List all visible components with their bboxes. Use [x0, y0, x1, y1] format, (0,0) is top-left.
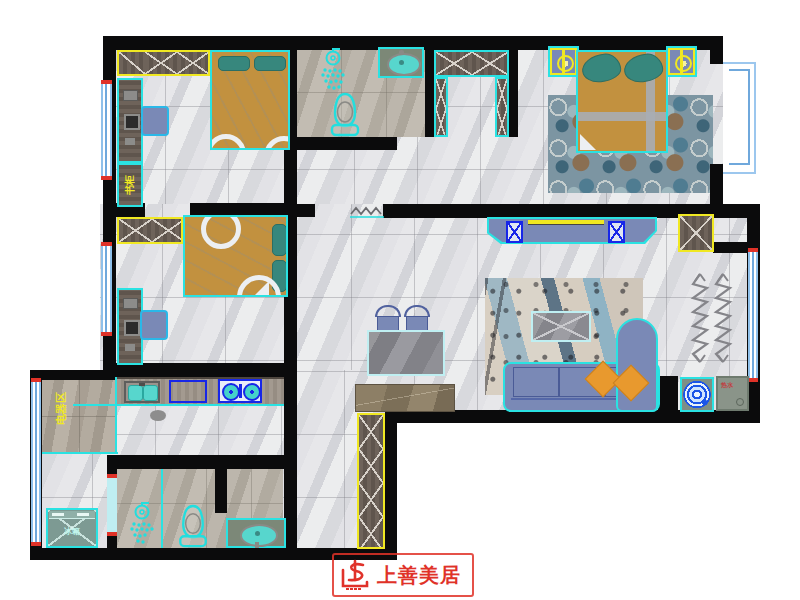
wall-bathroom2-top [107, 455, 297, 469]
utility-window [31, 382, 41, 542]
bed-blanket-swirl [210, 134, 246, 150]
wall-closet-left [425, 50, 434, 137]
bed-pillow [254, 56, 286, 71]
fridge-handle [77, 513, 89, 516]
desk-pc-icon [124, 320, 140, 336]
floor-plan: 书柜 [0, 0, 800, 600]
bed-fold-corner [253, 281, 269, 297]
bedroom2-chair [140, 310, 168, 340]
stove-burner [243, 383, 261, 401]
wall-entry-column [385, 410, 397, 560]
wall-left-step [30, 370, 117, 380]
bedroom1-window [101, 84, 112, 176]
bed-pillow [272, 224, 287, 256]
door-tick [107, 474, 117, 478]
master-bay-window [723, 62, 756, 174]
sink-bowl [128, 385, 143, 401]
window-tick [31, 542, 41, 546]
bathroom2-door [107, 478, 117, 532]
fridge-top-panel [49, 511, 95, 519]
bed-pillow [218, 56, 250, 71]
sink-faucet [399, 50, 404, 55]
sink-bowl [143, 385, 158, 401]
closet-right-column [495, 77, 509, 137]
threshold-zigzag-icon [350, 205, 384, 219]
water-heater-cabinet: 热水 [716, 376, 749, 411]
desk-printer-icon [123, 298, 138, 309]
dining-sideboard [355, 384, 455, 412]
logo-mark-icon [339, 558, 371, 592]
bed-blanket-swirl [201, 215, 241, 249]
desk-printer-icon [123, 90, 138, 101]
master-pillow [623, 52, 665, 84]
nightstand-cross [680, 50, 683, 73]
shower-icon [122, 502, 162, 548]
closet-top-wardrobe [434, 50, 509, 77]
sink-basin [387, 53, 421, 76]
dining-table [367, 330, 445, 376]
window-tick [31, 378, 41, 382]
closet-left-column [434, 77, 448, 137]
appliance-zone-line-v [115, 377, 117, 454]
bedroom1-desk [117, 78, 143, 163]
toilet-icon [176, 504, 210, 549]
window-tick [101, 80, 112, 84]
tv-screen [528, 220, 604, 225]
wall-bathroom1-bottom [297, 137, 397, 150]
bedroom1-bed [210, 50, 290, 150]
desk-lamp-icon [125, 344, 135, 351]
nightstand-lamp-icon [557, 55, 574, 72]
bathroom2-vanity [226, 518, 286, 548]
tv-cabinet [487, 217, 657, 244]
kitchen-counter-edge-line [73, 404, 284, 406]
heater-knob-icon [736, 398, 744, 406]
company-logo: 上善美居 [332, 553, 474, 597]
wall-bed2-bottom [103, 363, 297, 377]
door-tick [107, 532, 117, 536]
balcony-cabinet [678, 214, 714, 252]
bedroom2-bed [183, 215, 288, 297]
drying-rack-icon [713, 272, 733, 364]
coffee-table [531, 311, 591, 342]
window-tick [748, 378, 758, 382]
water-heater-label: 热水 [721, 381, 733, 390]
master-nightstand-right [668, 48, 695, 75]
wall-bathroom2-divider [215, 455, 227, 513]
bedroom2-wardrobe [117, 217, 183, 244]
master-bed [576, 50, 668, 153]
fridge-handle [52, 513, 64, 516]
bedroom1-cabinet-label: 书柜 [123, 175, 137, 195]
bedroom1-chair [141, 106, 169, 136]
sink-drain [255, 531, 260, 536]
master-bay-window-inner [729, 69, 750, 165]
master-pillow [581, 52, 623, 84]
fridge-label: 冰箱 [48, 526, 96, 537]
tv-speaker-right [608, 221, 625, 243]
sink-faucet [139, 383, 145, 386]
wardrobe-section-shelf [119, 52, 145, 74]
sofa-seat-cushion [513, 367, 559, 397]
stove-divider [239, 384, 242, 398]
kitchen-prep-zone [169, 380, 207, 403]
bedroom1-book-cabinet: 书柜 [117, 163, 143, 207]
appliance-zone-label: 电器区 [54, 392, 69, 425]
stove-burner [222, 383, 240, 401]
wall-closet-right [509, 50, 518, 137]
bed-blanket-swirl [264, 136, 290, 150]
drying-rack-icon [690, 272, 710, 364]
window-tick [101, 242, 112, 246]
fridge: 冰箱 [46, 508, 98, 548]
appliance-zone-line-h [42, 452, 118, 454]
sink-faucet [255, 542, 259, 548]
wall-right-mid [710, 164, 723, 204]
bedroom2-window [101, 246, 112, 332]
bathroom1-vanity [378, 47, 424, 78]
master-nightstand-left [550, 48, 577, 75]
tv-speaker-left [506, 221, 523, 243]
balcony-window [748, 252, 758, 378]
window-tick [101, 332, 112, 336]
window-tick [748, 248, 758, 252]
bed-fold-corner [580, 134, 596, 150]
window-tick [101, 176, 112, 180]
bedroom1-wardrobe [117, 50, 210, 76]
kitchen-sink [124, 381, 160, 403]
nightstand-cross [562, 50, 565, 73]
wall-corridor-a [297, 204, 315, 217]
wardrobe-section-x [145, 52, 208, 74]
toilet-icon [328, 92, 362, 138]
shower-icon [313, 48, 353, 94]
wall-living-balcony-stub [658, 376, 678, 412]
desk-lamp-icon [125, 138, 135, 145]
sink-drain [399, 60, 404, 65]
wall-right-top [710, 36, 723, 64]
sofa-chaise [616, 318, 658, 412]
desk-pc-icon [124, 114, 140, 130]
nightstand-lamp-icon [675, 55, 692, 72]
appliance-zone-label-box: 电器区 [44, 385, 78, 431]
logo-brand-text: 上善美居 [377, 562, 461, 589]
kitchen-stove [218, 379, 262, 403]
washing-machine [680, 377, 714, 412]
floor-drain [150, 410, 166, 421]
entry-shoe-cabinet [357, 413, 385, 549]
